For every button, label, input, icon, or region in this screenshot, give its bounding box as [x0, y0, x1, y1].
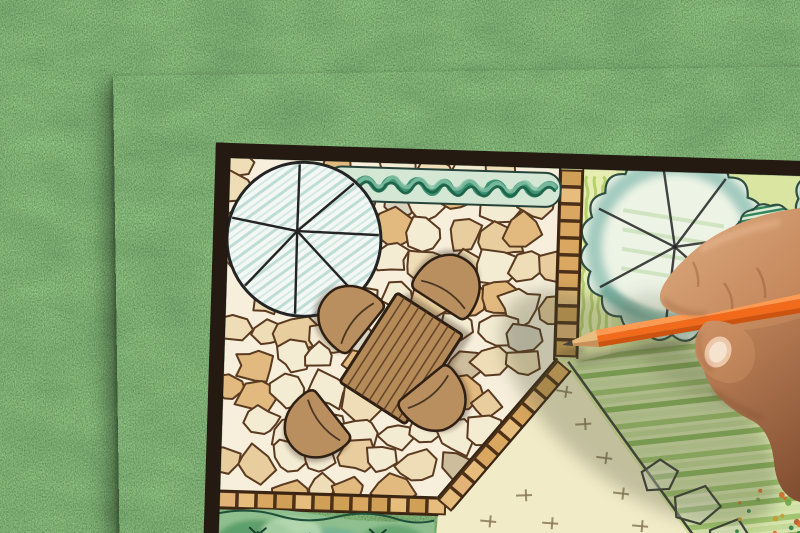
photo-garden-plan-scene [0, 0, 800, 533]
hand-and-pencil-overlay [0, 0, 800, 533]
